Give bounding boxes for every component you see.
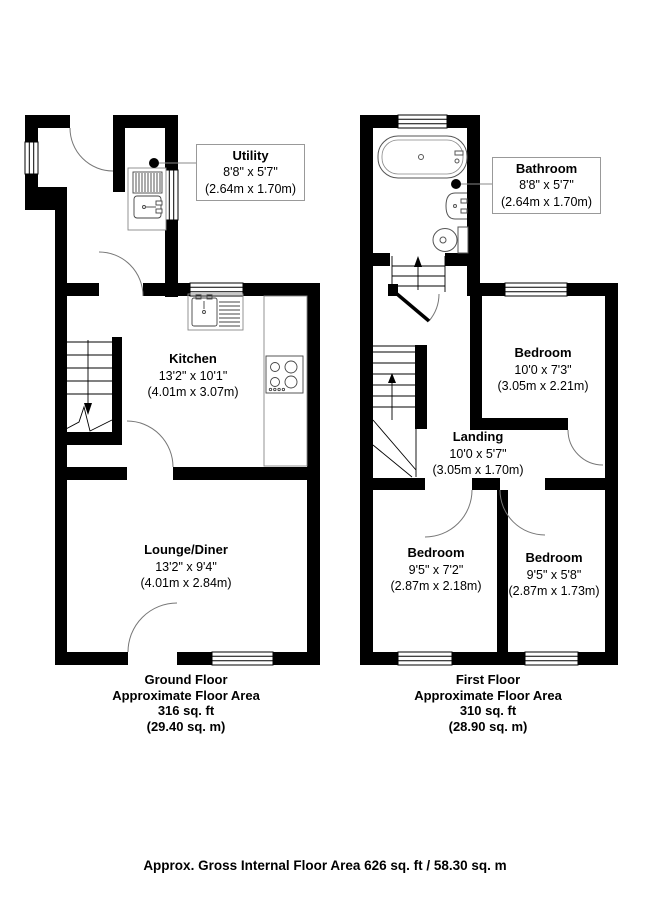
- room-dims-imperial: 8'8" x 5'7": [501, 177, 592, 194]
- room-dims-imperial: 10'0 x 7'3": [497, 362, 588, 379]
- stairs-half-flight-icon: [392, 256, 445, 292]
- door-arc-front-door: [128, 603, 177, 652]
- window-bathroom: [398, 115, 447, 128]
- room-dims-imperial: 10'0 x 5'7": [432, 446, 523, 463]
- floor-area-m: (29.40 sq. m): [112, 719, 260, 735]
- window-bedroom-front-right: [525, 652, 578, 665]
- room-dims-metric: (3.05m x 2.21m): [497, 378, 588, 395]
- room-dims-metric: (4.01m x 3.07m): [147, 384, 238, 401]
- first-floor-caption: First Floor Approximate Floor Area 310 s…: [414, 672, 562, 734]
- door-arc-kitchen-lounge: [127, 421, 173, 467]
- floor-title: First Floor: [414, 672, 562, 688]
- floor-subtitle: Approximate Floor Area: [112, 688, 260, 704]
- floor-area-ft: 310 sq. ft: [414, 703, 562, 719]
- basin-icon: [446, 193, 467, 219]
- floorplan-canvas: Utility 8'8" x 5'7" (2.64m x 1.70m) Bath…: [0, 0, 650, 919]
- lounge-label: Lounge/Diner 13'2" x 9'4" (4.01m x 2.84m…: [140, 542, 231, 592]
- utility-leader-dot: [149, 158, 159, 168]
- stairs-up-arrowhead: [388, 373, 396, 383]
- gross-area-footer: Approx. Gross Internal Floor Area 626 sq…: [143, 858, 506, 873]
- floor-area-ft: 316 sq. ft: [112, 703, 260, 719]
- bathtub-icon: [378, 136, 467, 178]
- door-arc-bedroom-rear: [568, 430, 603, 465]
- window-utility-left: [25, 142, 38, 174]
- room-name: Lounge/Diner: [140, 542, 231, 559]
- door-arc-utility-rear: [70, 128, 113, 171]
- bedroom-front-left-label: Bedroom 9'5" x 7'2" (2.87m x 2.18m): [390, 545, 481, 595]
- room-dims-metric: (2.64m x 1.70m): [205, 181, 296, 198]
- utility-label-box: Utility 8'8" x 5'7" (2.64m x 1.70m): [196, 144, 305, 201]
- window-bedroom-front-left: [398, 652, 452, 665]
- kitchen-label: Kitchen 13'2" x 10'1" (4.01m x 3.07m): [147, 351, 238, 401]
- room-name: Bathroom: [501, 160, 592, 177]
- room-name: Bedroom: [508, 550, 599, 567]
- room-dims-metric: (4.01m x 2.84m): [140, 575, 231, 592]
- door-arc-utility-kitchen: [99, 252, 143, 296]
- door-leaf-bathroom: [397, 294, 429, 321]
- stairs-up-arrowhead-top: [414, 256, 422, 267]
- window-bedroom-rear: [505, 283, 567, 296]
- utility-fixtures: [128, 158, 196, 230]
- window-utility-right: [165, 170, 178, 220]
- bathroom-label-box: Bathroom 8'8" x 5'7" (2.64m x 1.70m): [492, 157, 601, 214]
- room-dims-imperial: 9'5" x 5'8": [508, 567, 599, 584]
- room-dims-imperial: 8'8" x 5'7": [205, 164, 296, 181]
- floor-area-m: (28.90 sq. m): [414, 719, 562, 735]
- room-dims-metric: (2.87m x 1.73m): [508, 583, 599, 600]
- room-name: Bedroom: [497, 345, 588, 362]
- floorplan-drawing: [0, 0, 650, 919]
- bedroom-rear-label: Bedroom 10'0 x 7'3" (3.05m x 2.21m): [497, 345, 588, 395]
- room-dims-metric: (2.64m x 1.70m): [501, 194, 592, 211]
- room-dims-imperial: 13'2" x 9'4": [140, 559, 231, 576]
- window-lounge: [212, 652, 273, 665]
- door-arc-bathroom: [429, 294, 439, 321]
- room-dims-imperial: 9'5" x 7'2": [390, 562, 481, 579]
- room-name: Bedroom: [390, 545, 481, 562]
- bathroom-leader-dot: [451, 179, 461, 189]
- stairs-up-icon: [373, 346, 416, 477]
- room-name: Landing: [432, 429, 523, 446]
- stairs-down-icon: [64, 340, 112, 431]
- utility-sink-icon: [134, 196, 162, 218]
- room-dims-metric: (3.05m x 1.70m): [432, 462, 523, 479]
- kitchen-sink-icon: [188, 294, 243, 330]
- landing-label: Landing 10'0 x 5'7" (3.05m x 1.70m): [432, 429, 523, 479]
- bedroom-front-right-label: Bedroom 9'5" x 5'8" (2.87m x 1.73m): [508, 550, 599, 600]
- room-dims-metric: (2.87m x 2.18m): [390, 578, 481, 595]
- room-name: Kitchen: [147, 351, 238, 368]
- winder-tread: [373, 445, 412, 477]
- room-dims-imperial: 13'2" x 10'1": [147, 368, 238, 385]
- room-name: Utility: [205, 147, 296, 164]
- ground-floor-caption: Ground Floor Approximate Floor Area 316 …: [112, 672, 260, 734]
- floor-subtitle: Approximate Floor Area: [414, 688, 562, 704]
- floor-title: Ground Floor: [112, 672, 260, 688]
- door-arc-bedroom-front-left: [425, 490, 472, 537]
- toilet-icon: [433, 227, 468, 253]
